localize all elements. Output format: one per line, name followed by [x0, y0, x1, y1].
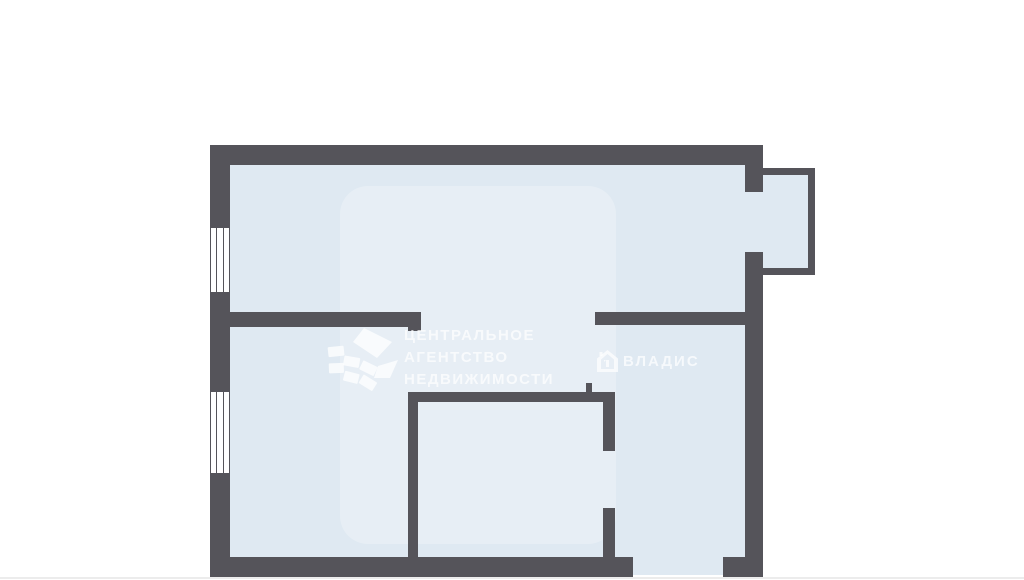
image-bottom-border [0, 577, 1024, 579]
house-icon [597, 350, 618, 372]
outer-wall-bottom-left-segment [210, 557, 633, 577]
interior-wall-top-room-right [595, 312, 745, 325]
agency-watermark-line1: ЦЕНТРАЛЬНОЕ [404, 325, 554, 347]
window-bottom-left [210, 392, 230, 473]
interior-wall-middle-room-right-upper [603, 392, 615, 451]
floor-balcony [763, 175, 808, 268]
agency-ribbon-logo-icon [322, 328, 408, 394]
interior-wall-middle-room-right-lower [603, 508, 615, 557]
interior-wall-top-room-left [230, 312, 408, 327]
balcony-wall-bottom [763, 268, 815, 275]
floor-balcony-doorway [745, 192, 763, 252]
vladis-watermark: ВЛАДИС [597, 350, 700, 372]
interior-wall-middle-room-top [408, 392, 615, 402]
outer-wall-left [210, 145, 230, 577]
agency-watermark-line3: НЕДВИЖИМОСТИ [404, 369, 554, 391]
outer-wall-right-lower [745, 252, 763, 577]
door-jamb-middle-room-top [586, 383, 592, 393]
floor-entrance-doorway [633, 557, 723, 575]
agency-watermark-line2: АГЕНТСТВО [404, 347, 554, 369]
vladis-label: ВЛАДИС [623, 353, 700, 370]
interior-wall-left-room-right [408, 393, 418, 557]
balcony-wall-right [808, 168, 815, 275]
agency-watermark: ЦЕНТРАЛЬНОЕ АГЕНТСТВО НЕДВИЖИМОСТИ [404, 325, 554, 391]
floorplan-image: ЦЕНТРАЛЬНОЕ АГЕНТСТВО НЕДВИЖИМОСТИ ВЛАДИ… [0, 0, 1024, 580]
outer-wall-top [210, 145, 763, 165]
outer-wall-right-upper [745, 145, 763, 192]
window-top-left [210, 228, 230, 292]
